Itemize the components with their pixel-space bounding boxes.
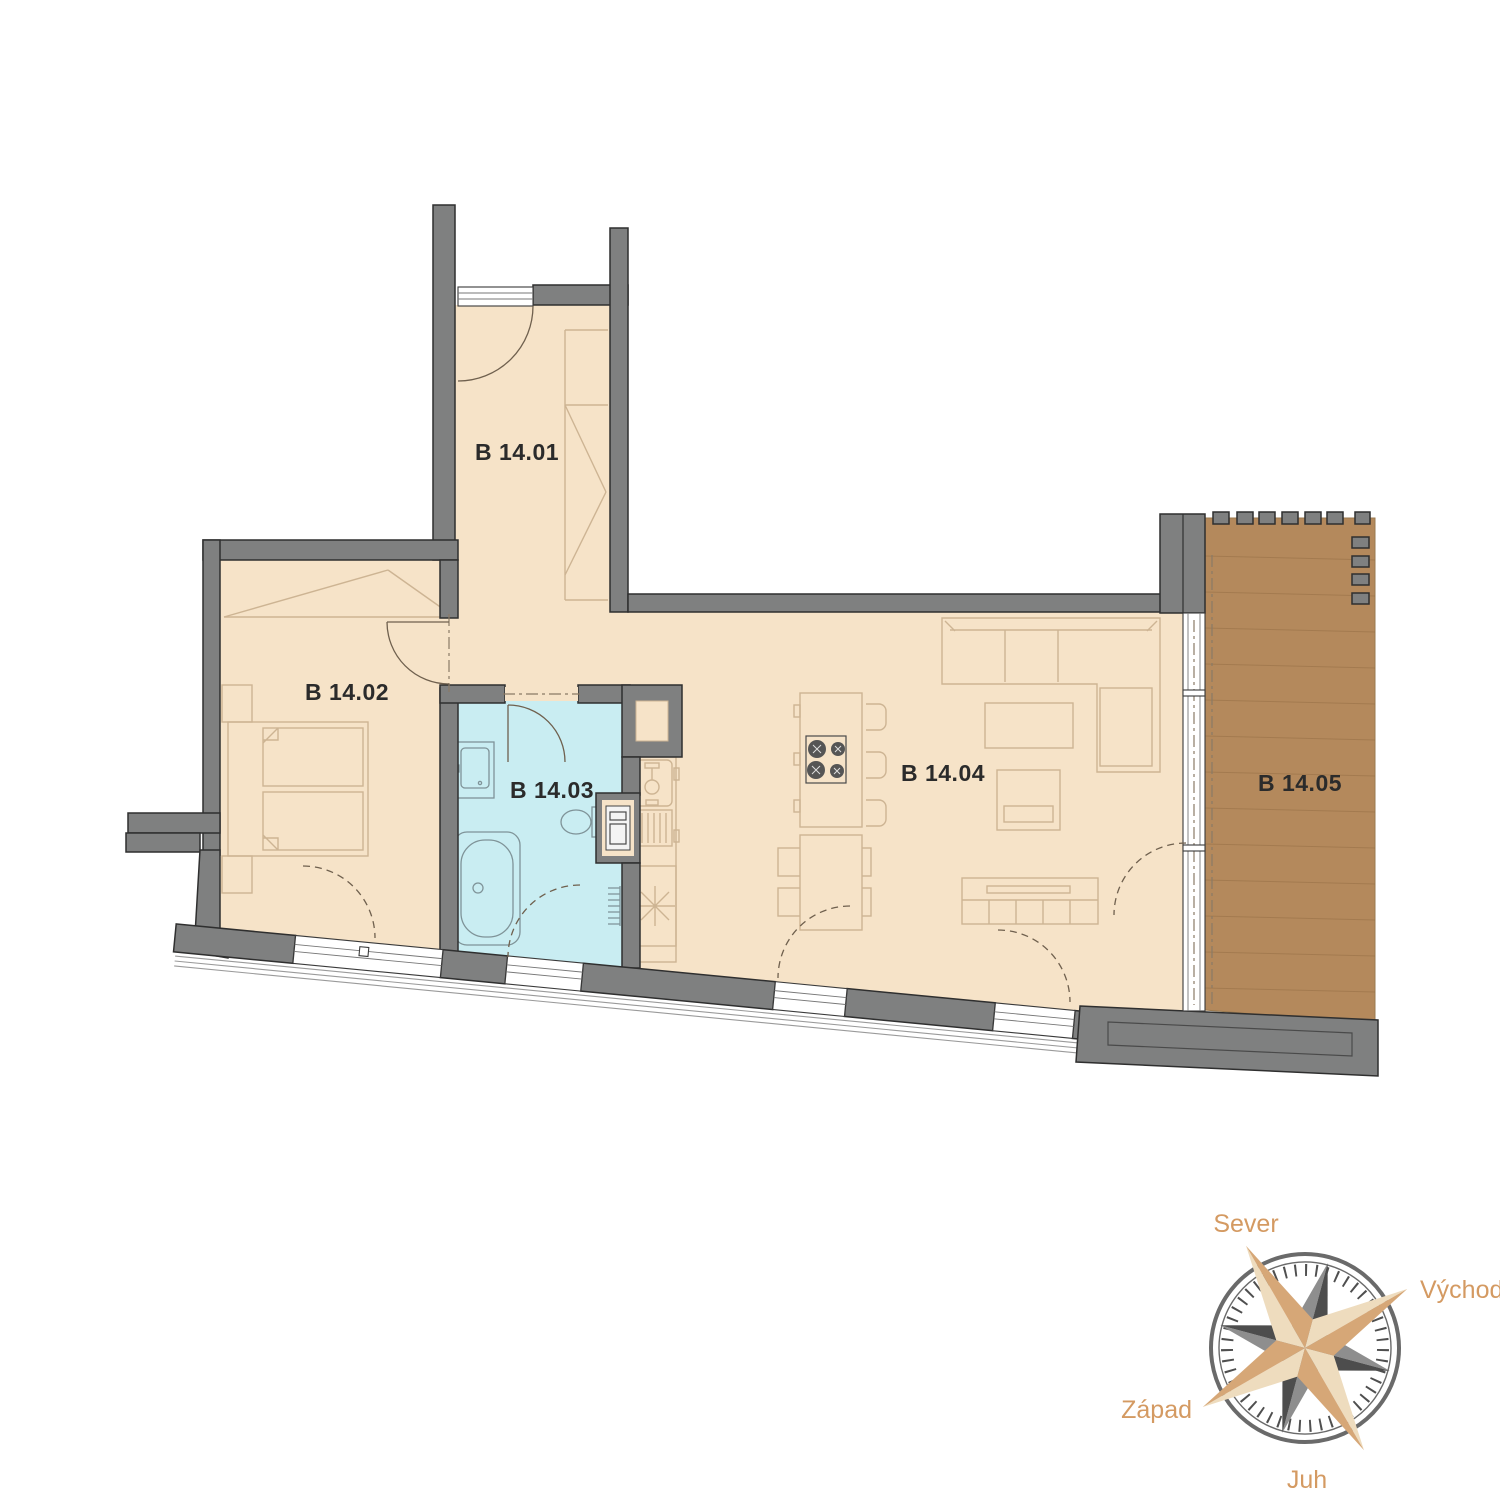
wall-bump-out: [126, 833, 200, 852]
hall-right-wall: [610, 228, 628, 612]
bathroom-right-wall: [622, 757, 640, 795]
washer-column: [602, 800, 634, 856]
room-label-living: B 14.04: [901, 760, 985, 786]
room-label-bathroom: B 14.03: [510, 777, 594, 803]
bedroom-bath-wall: [440, 560, 458, 618]
compass-label-east: Východ: [1420, 1276, 1500, 1304]
left-exterior-wall: [203, 540, 220, 855]
room-label-hallway: B 14.01: [475, 439, 559, 465]
floor-plan-page: B 14.01 B 14.02 B 14.03 B 14.04 B 14.05: [0, 0, 1500, 1500]
dining-table: [800, 835, 862, 930]
bathroom-top-wall: [440, 685, 505, 703]
compass-label-south: Juh: [1287, 1466, 1327, 1494]
compass-rose: Sever Východ Juh Západ: [1121, 1187, 1500, 1500]
shaft-opening: [636, 701, 668, 741]
compass-cardinal-points: [1144, 1187, 1466, 1500]
compass-label-west: Západ: [1121, 1396, 1192, 1424]
room-label-bedroom: B 14.02: [305, 679, 389, 705]
hall-left-wall: [433, 205, 455, 560]
apartment-floor: [220, 305, 1183, 1025]
drainboard: [636, 810, 672, 846]
wall-segment: [440, 950, 507, 984]
bedroom-bath-wall: [440, 688, 458, 956]
floor-plan-canvas: B 14.01 B 14.02 B 14.03 B 14.04 B 14.05: [0, 0, 1500, 1500]
bedroom-top-wall: [203, 540, 458, 560]
bathroom-right-wall: [622, 863, 640, 968]
room-label-terrace: B 14.05: [1258, 770, 1342, 796]
terrace-glass-wall: [1183, 613, 1205, 1011]
living-top-wall: [628, 594, 1168, 612]
wall-bump-out: [128, 813, 220, 833]
compass-label-north: Sever: [1213, 1210, 1278, 1238]
